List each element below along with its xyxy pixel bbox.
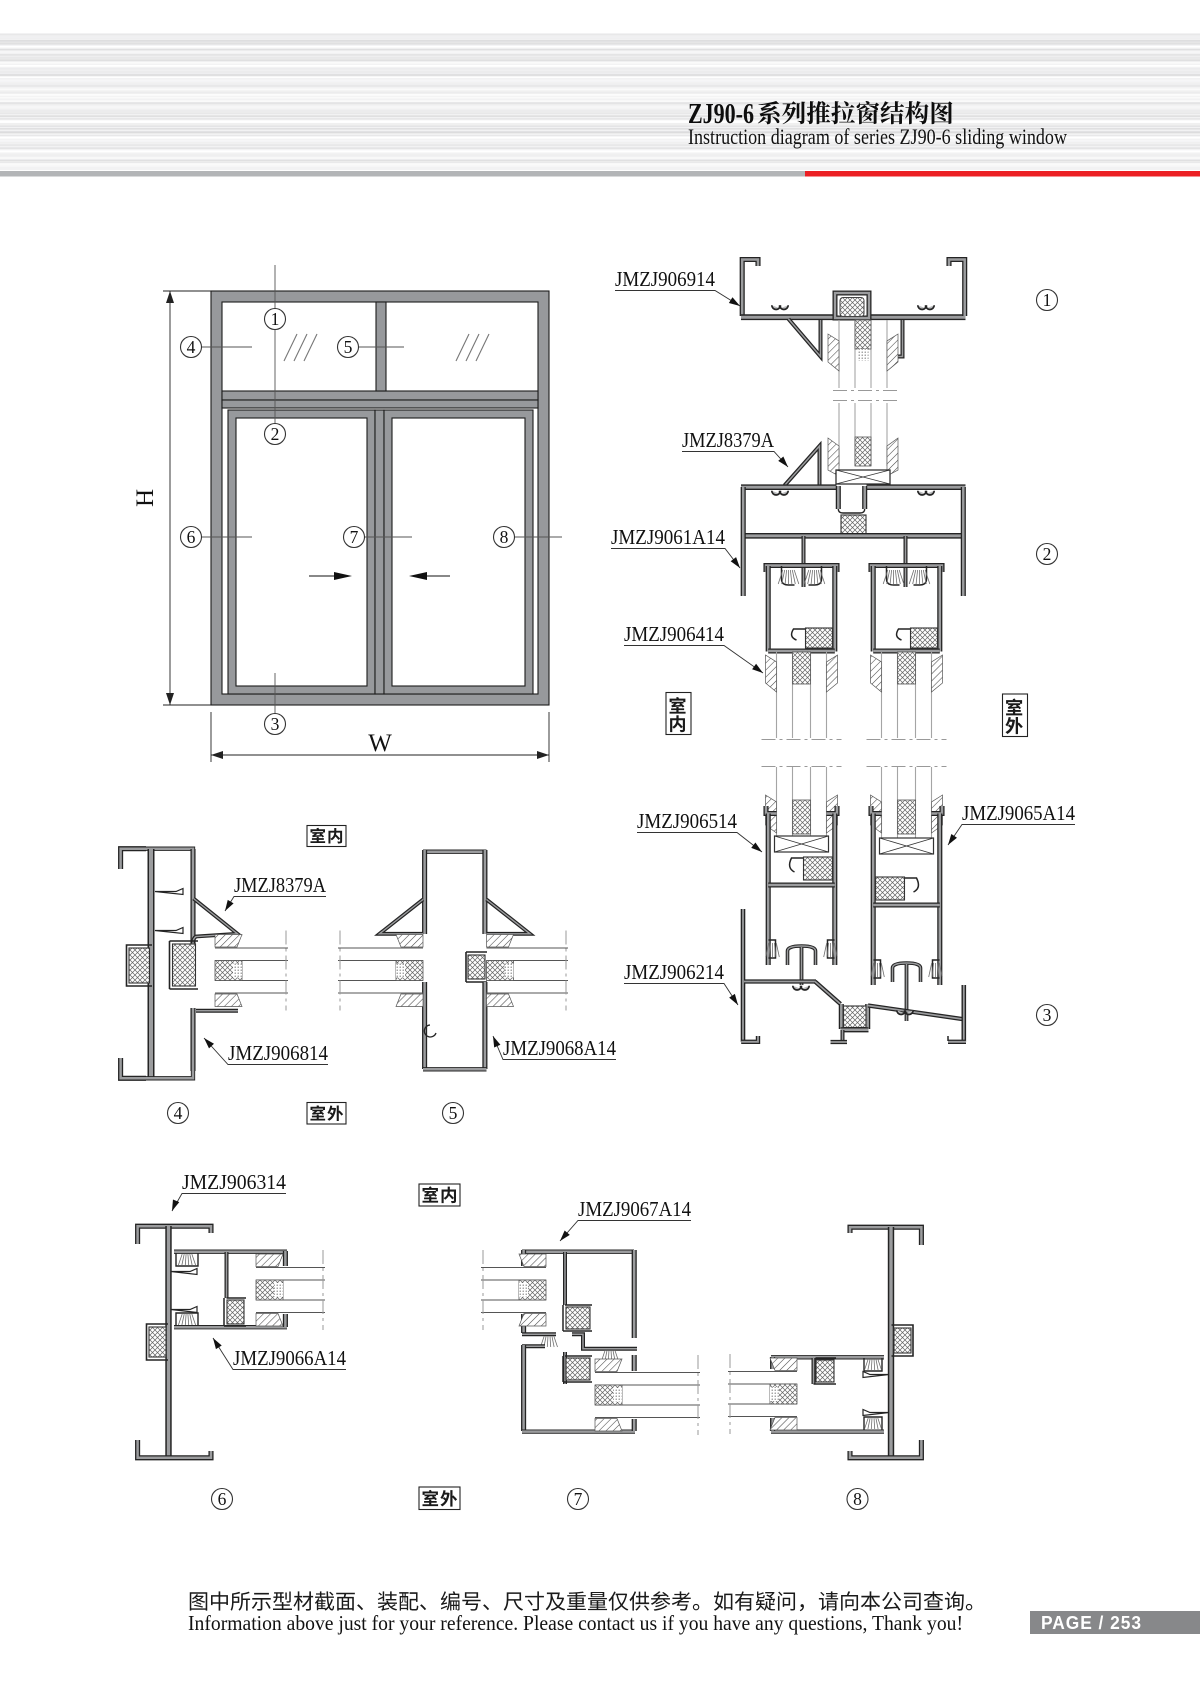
svg-text:4: 4 [174,1103,183,1123]
svg-text:4: 4 [187,337,196,357]
svg-text:1: 1 [271,309,280,329]
svg-text:PAGE / 253: PAGE / 253 [1041,1613,1142,1633]
svg-text:8: 8 [500,527,509,547]
svg-text:6: 6 [218,1489,227,1509]
svg-text:H: H [132,489,159,507]
svg-text:6: 6 [187,527,196,547]
svg-text:2: 2 [1043,544,1052,564]
svg-text:JMZJ906314: JMZJ906314 [182,1170,286,1194]
svg-text:JMZJ9061A14: JMZJ9061A14 [611,525,725,549]
svg-text:7: 7 [350,527,359,547]
svg-text:JMZJ906814: JMZJ906814 [228,1041,328,1065]
svg-text:3: 3 [1043,1005,1052,1025]
svg-text:JMZJ906414: JMZJ906414 [624,622,724,646]
svg-text:3: 3 [271,714,280,734]
svg-text:JMZJ906914: JMZJ906914 [615,267,715,291]
svg-text:JMZJ906514: JMZJ906514 [637,809,737,833]
svg-text:JMZJ9065A14: JMZJ9065A14 [962,801,1075,825]
svg-text:JMZJ9067A14: JMZJ9067A14 [578,1197,691,1221]
svg-text:Instruction diagram of series: Instruction diagram of series ZJ90-6 sli… [688,124,1067,149]
svg-text:JMZJ9066A14: JMZJ9066A14 [233,1346,346,1370]
svg-text:JMZJ9068A14: JMZJ9068A14 [503,1036,616,1060]
svg-text:W: W [368,730,392,757]
svg-text:JMZJ8379A: JMZJ8379A [682,428,774,452]
svg-text:7: 7 [574,1489,583,1509]
svg-text:2: 2 [271,424,280,444]
svg-text:5: 5 [344,337,353,357]
svg-text:JMZJ906214: JMZJ906214 [624,960,724,984]
svg-text:JMZJ8379A: JMZJ8379A [234,873,326,897]
svg-text:5: 5 [449,1103,458,1123]
svg-text:Information above just for you: Information above just for your referenc… [188,1611,963,1635]
svg-text:8: 8 [853,1489,862,1509]
svg-text:1: 1 [1043,290,1052,310]
